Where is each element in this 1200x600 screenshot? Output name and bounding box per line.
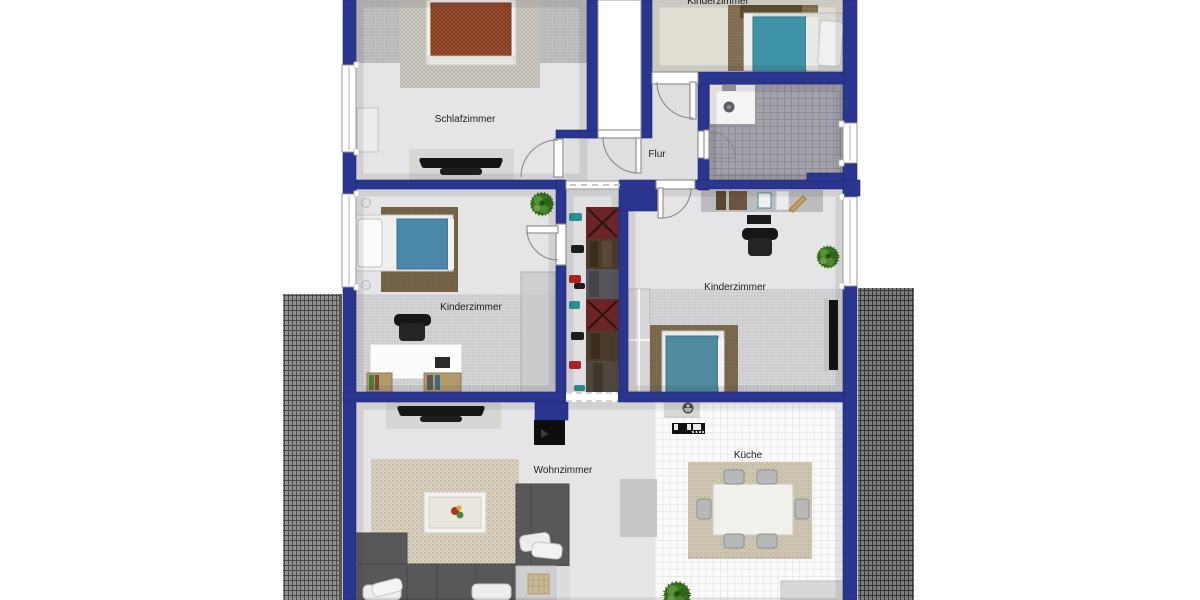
svg-text:Flur: Flur: [648, 149, 666, 160]
svg-text:Küche: Küche: [734, 450, 763, 461]
svg-text:Kinderzimmer: Kinderzimmer: [704, 282, 766, 293]
svg-text:Kinderzimmer: Kinderzimmer: [440, 302, 502, 313]
svg-text:Schlafzimmer: Schlafzimmer: [435, 114, 496, 125]
svg-text:Kinderzimmer: Kinderzimmer: [687, 0, 749, 7]
svg-text:Wohnzimmer: Wohnzimmer: [534, 465, 593, 476]
